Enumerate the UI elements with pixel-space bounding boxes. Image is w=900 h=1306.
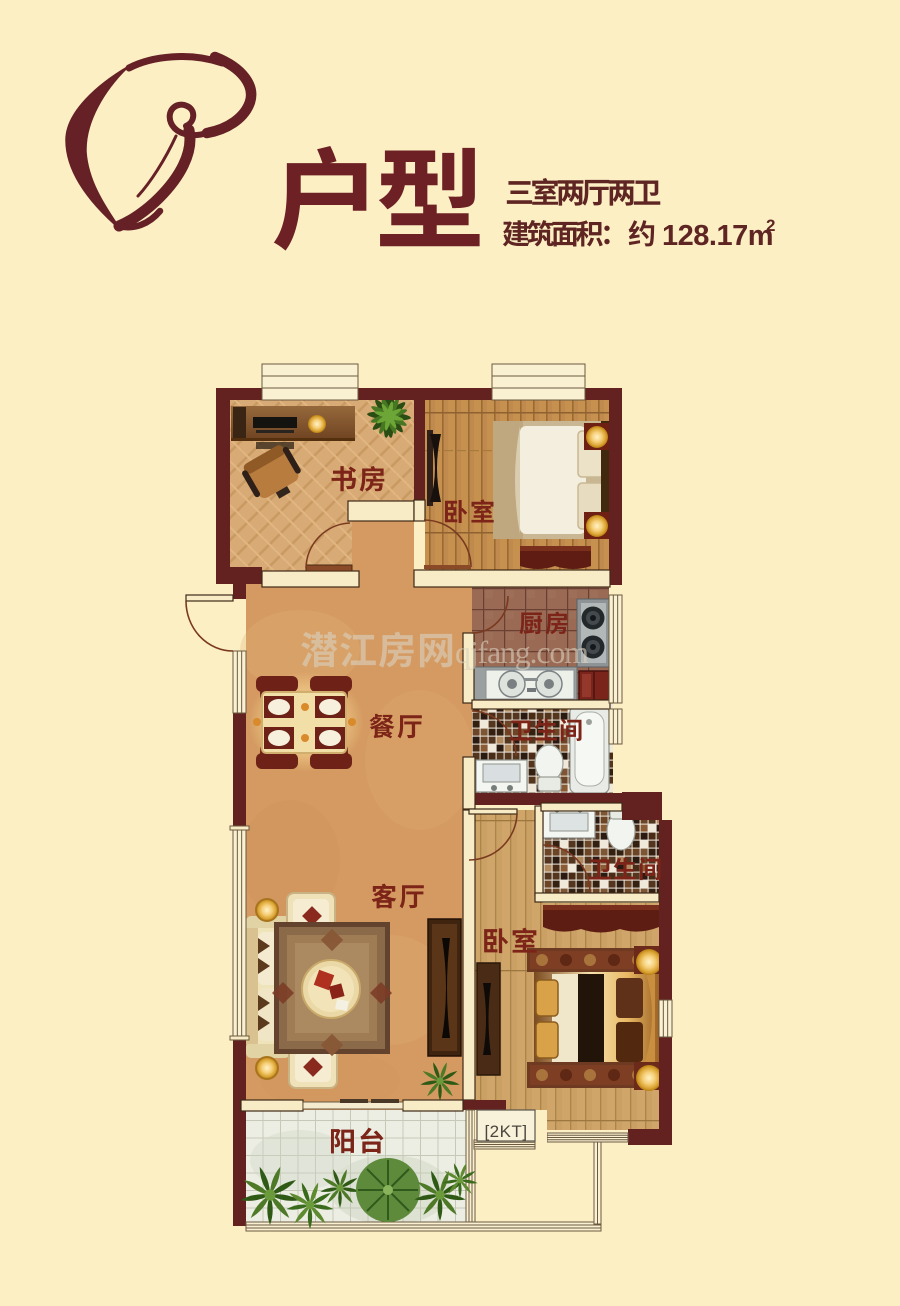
svg-text:qjfang.com: qjfang.com [455, 634, 589, 670]
svg-text:[2KT]: [2KT] [484, 1122, 527, 1141]
svg-text:128.17m: 128.17m [662, 220, 773, 252]
svg-text:2: 2 [766, 216, 775, 235]
